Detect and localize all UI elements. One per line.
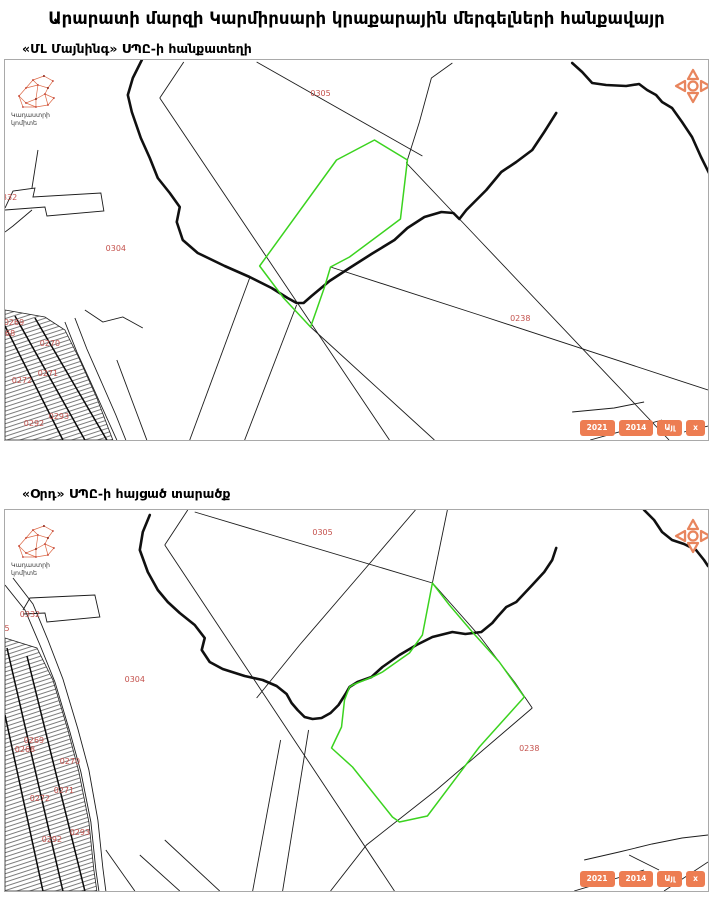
map2-subtitle: «Օրդ» ՍՊԸ-ի հայցած տարածք xyxy=(22,486,230,501)
layer-buttons: 20212014Այլx xyxy=(580,871,705,887)
cadastral-map-viewport-1[interactable]: 0305030402380332026902680270027102720293… xyxy=(4,59,709,441)
strip-parcel-block xyxy=(5,578,220,891)
layer-button-Այլ[interactable]: Այլ xyxy=(657,420,682,436)
pan-compass-icon[interactable] xyxy=(676,520,708,552)
logo-text-line1: Կադաստրի xyxy=(11,112,50,119)
parcel-label-0305: 0305 xyxy=(312,528,332,537)
parcel-label-0293: 0293 xyxy=(70,828,90,837)
parcel-label-0269: 0269 xyxy=(24,736,44,745)
parcel-label-0292: 0292 xyxy=(42,835,62,844)
logo-text-line2: կոմիտե xyxy=(11,120,37,127)
parcel-label-0304: 0304 xyxy=(106,244,126,253)
cadastre-logo: Կադաստրի կոմիտե xyxy=(11,75,55,127)
parcel-boundaries xyxy=(23,510,708,891)
parcel-label-0332: 0332 xyxy=(20,610,40,619)
parcel-label-0270: 0270 xyxy=(40,339,60,348)
layer-button-2014[interactable]: 2014 xyxy=(619,420,654,436)
parcel-label-0238: 0238 xyxy=(510,314,530,323)
parcel-label-0268: 0268 xyxy=(5,329,15,338)
parcel-label-0238: 0238 xyxy=(519,744,539,753)
mine-site-highlight-polygon xyxy=(260,140,408,327)
layer-button-x[interactable]: x xyxy=(686,420,705,436)
parcel-label-5: 5 xyxy=(5,624,10,633)
parcel-label-0293: 0293 xyxy=(49,412,69,421)
river-lines xyxy=(128,60,708,303)
parcel-label-0292: 0292 xyxy=(24,419,44,428)
page-title: Արարատի մարզի Կարմիրսարի կրաքարային մերգ… xyxy=(0,9,713,28)
logo-text-line1: Կադաստրի xyxy=(11,562,50,569)
map1-subtitle: «ՄԼ Մայնինգ» ՍՊԸ-ի հանքատեղի xyxy=(22,41,252,56)
river-lines xyxy=(140,510,708,719)
parcel-label-0270: 0270 xyxy=(60,757,80,766)
logo-text-line2: կոմիտե xyxy=(11,570,37,577)
layer-button-2014[interactable]: 2014 xyxy=(619,871,654,887)
parcel-label-0271: 0271 xyxy=(54,786,74,795)
parcel-number-labels: 0305030402380332502690268027002710272029… xyxy=(5,528,539,844)
parcel-label-0269: 0269 xyxy=(5,318,24,327)
cadastre-logo: Կադաստրի կոմիտե xyxy=(11,525,55,577)
layer-button-2021[interactable]: 2021 xyxy=(580,420,615,436)
parcel-label-0272: 0272 xyxy=(12,376,32,385)
parcel-label-0272: 0272 xyxy=(30,794,50,803)
parcel-label-0332: 0332 xyxy=(5,193,17,202)
parcel-label-0305: 0305 xyxy=(310,89,330,98)
layer-button-2021[interactable]: 2021 xyxy=(580,871,615,887)
parcel-label-0268: 0268 xyxy=(15,745,35,754)
layer-buttons: 20212014Այլx xyxy=(580,420,705,436)
layer-button-Այլ[interactable]: Այլ xyxy=(657,871,682,887)
layer-button-x[interactable]: x xyxy=(686,871,705,887)
parcel-label-0304: 0304 xyxy=(125,675,145,684)
pan-compass-icon[interactable] xyxy=(676,70,708,102)
parcel-label-0271: 0271 xyxy=(38,369,58,378)
cadastral-map-viewport-2[interactable]: 0305030402380332502690268027002710272029… xyxy=(4,509,709,892)
